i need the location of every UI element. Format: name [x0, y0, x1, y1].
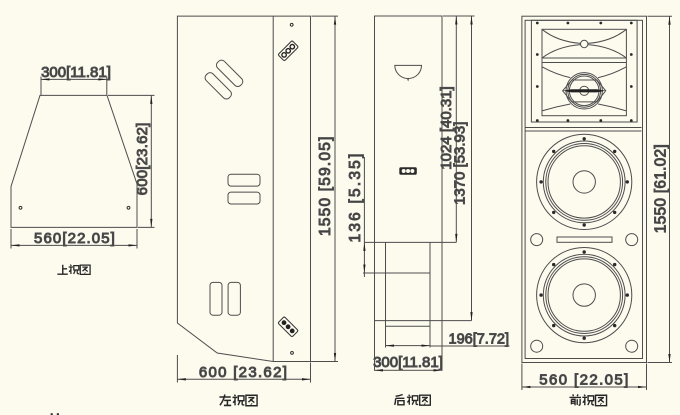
svg-text:196[7.72]: 196[7.72] [449, 331, 509, 347]
svg-text:560[22.05]: 560[22.05] [34, 230, 116, 247]
svg-text:1550 [61.02]: 1550 [61.02] [652, 144, 669, 233]
svg-text:600 [23.62]: 600 [23.62] [199, 364, 288, 381]
svg-text:136 [5.35]: 136 [5.35] [347, 152, 364, 243]
svg-text:300[11.81]: 300[11.81] [41, 64, 111, 81]
svg-text:560 [22.05]: 560 [22.05] [539, 372, 629, 389]
svg-text:300[11.81]: 300[11.81] [373, 354, 443, 371]
svg-text:1550 [59.05]: 1550 [59.05] [317, 135, 334, 236]
svg-text:1370 [53.93]: 1370 [53.93] [452, 122, 469, 205]
svg-text:600[23.62]: 600[23.62] [134, 122, 151, 195]
